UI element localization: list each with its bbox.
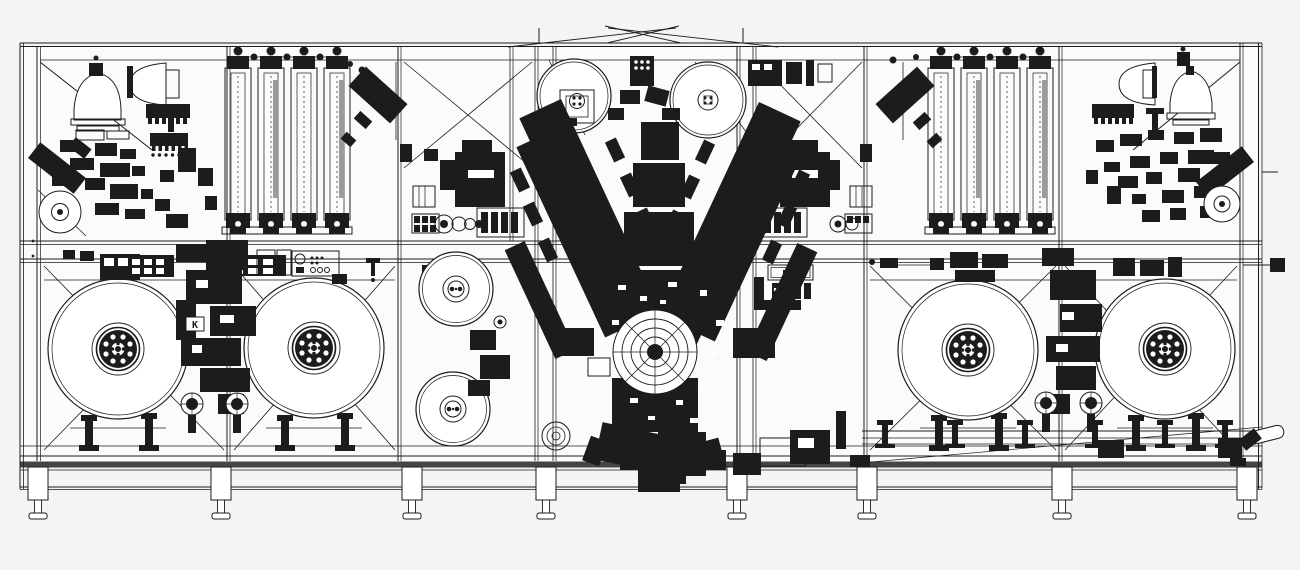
cad-drawing-canvas: K [0, 0, 1300, 570]
splice-marker-label: K [192, 320, 198, 331]
corner-roller-right [1204, 186, 1240, 222]
machine-elevation-drawing: K [0, 0, 1300, 570]
